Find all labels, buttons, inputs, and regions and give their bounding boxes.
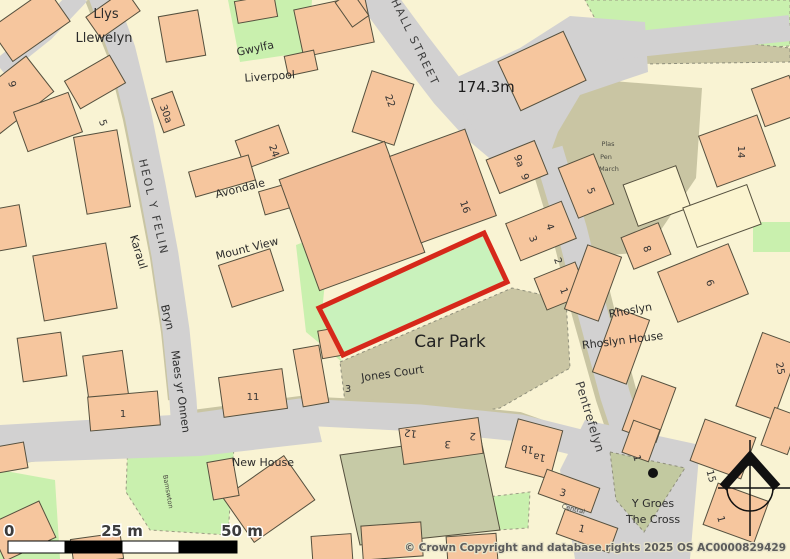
- junction-dot: [648, 468, 658, 478]
- house-number: 1: [120, 409, 126, 420]
- place-label-the-cross: The Cross: [625, 513, 680, 526]
- place-label-pen: Pen: [600, 153, 612, 161]
- house-number: 1b: [520, 442, 534, 455]
- place-label-plas: Plas: [601, 140, 615, 148]
- house-number: 11: [247, 392, 260, 403]
- house-number: 1a: [532, 450, 546, 463]
- house-number: 3: [444, 438, 451, 450]
- scale-label-25m: 25 m: [101, 522, 143, 540]
- house-number: 25: [773, 361, 786, 375]
- house-number: 2: [469, 430, 476, 442]
- map-canvas: HALL STREET HEOL Y FELIN Pentrefelyn Lly…: [0, 0, 790, 559]
- place-label-new-house: New House: [232, 456, 294, 469]
- copyright-notice: © Crown Copyright and database rights 20…: [405, 542, 786, 554]
- house-number: 14: [735, 146, 746, 159]
- place-label-march: March: [599, 165, 619, 173]
- place-label-llys: Llys: [93, 7, 119, 22]
- spot-height-label: 174.3m: [457, 78, 515, 96]
- house-number: 3: [345, 384, 351, 395]
- place-label-llewelyn: Llewelyn: [75, 31, 132, 46]
- scale-label-zero: 0: [4, 522, 14, 540]
- place-label-y-groes: Y Groes: [631, 497, 675, 510]
- house-number: 12: [404, 426, 418, 439]
- scale-label-50m: 50 m: [221, 522, 263, 540]
- place-label-car-park: Car Park: [414, 332, 486, 352]
